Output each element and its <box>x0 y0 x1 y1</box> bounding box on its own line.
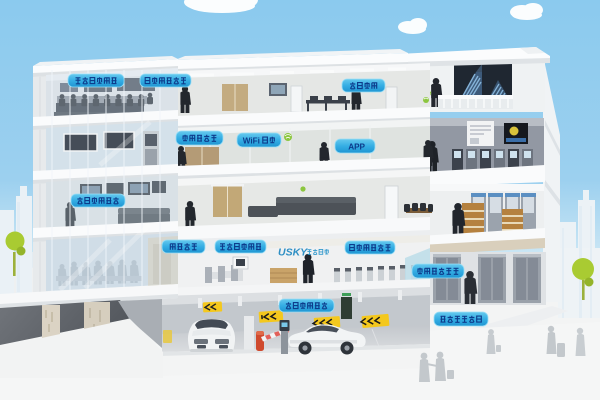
svg-text:APP: APP <box>348 142 365 151</box>
svg-text:WiFi: WiFi <box>243 136 260 145</box>
svg-text:USKY: USKY <box>278 247 308 259</box>
